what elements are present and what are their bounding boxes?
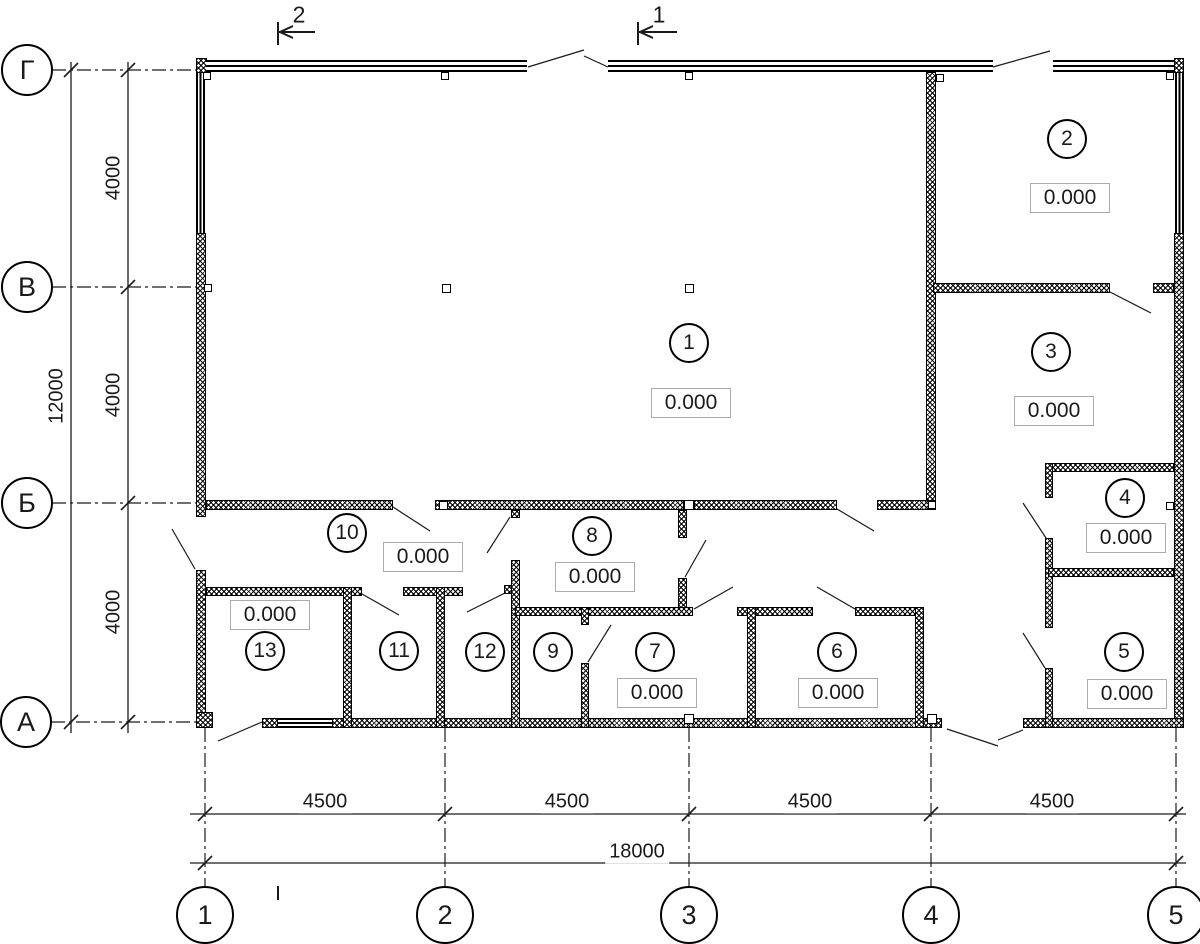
column-marker [439, 501, 448, 510]
wall-segment [436, 587, 445, 728]
room-11-number: 11 [379, 631, 419, 671]
axis-label: А [17, 707, 35, 738]
axis-row-g: Г [1, 44, 53, 96]
jamb-marker [204, 284, 212, 292]
wall-segment [678, 510, 687, 538]
jamb-marker [1166, 502, 1174, 510]
wall-segment [1174, 58, 1184, 73]
room-number-label: 5 [1118, 640, 1130, 664]
axis-label: В [18, 272, 36, 303]
dim-vertical-seg-2: 4000 [103, 369, 126, 422]
room-5-number: 5 [1104, 632, 1144, 672]
wall-segment [694, 500, 837, 510]
room-8-number: 8 [572, 516, 612, 556]
dim-value: 4000 [103, 373, 125, 418]
window-band [608, 60, 993, 72]
room-10-elevation: 0.000 [383, 542, 463, 572]
floor-plan: 1 2 3 4 5 6 7 8 9 10 11 12 13 0.000 0.00… [0, 0, 1200, 900]
wall-segment [511, 560, 520, 728]
room-number-label: 12 [473, 640, 496, 664]
wall-segment [196, 570, 206, 728]
axis-col-5: 5 [1147, 886, 1200, 944]
room-13-elevation: 0.000 [230, 600, 310, 630]
grid-row-lines [51, 70, 1176, 888]
window-band [1053, 60, 1174, 72]
section-2-label: 2 [293, 2, 306, 29]
room-2-number: 2 [1047, 119, 1087, 159]
axis-label: 2 [437, 900, 452, 931]
dim-value: 4000 [103, 590, 125, 635]
column-marker [684, 500, 694, 510]
axis-row-v: В [1, 261, 53, 313]
wall-segment [196, 712, 213, 728]
room-8-elevation: 0.000 [555, 562, 635, 592]
dim-value: 18000 [609, 841, 665, 863]
room-4-number: 4 [1105, 478, 1145, 518]
room-number-label: 6 [831, 640, 843, 664]
room-1-number: 1 [669, 323, 709, 363]
dim-vertical-seg-1: 4000 [103, 152, 126, 205]
section-label: 2 [293, 2, 306, 28]
room-3-elevation: 0.000 [1014, 396, 1094, 426]
room-9-number: 9 [533, 632, 573, 672]
wall-segment [403, 587, 463, 596]
wall-segment [196, 233, 206, 517]
dim-value: 12000 [46, 368, 68, 424]
axis-row-a: А [0, 696, 52, 748]
wall-segment [435, 500, 684, 510]
wall-segment [206, 587, 362, 596]
elevation-value: 0.000 [665, 391, 718, 415]
elevation-value: 0.000 [631, 681, 684, 705]
dim-value: 4500 [1030, 791, 1075, 813]
wall-segment [933, 283, 1110, 293]
elevation-value: 0.000 [244, 603, 297, 627]
room-12-number: 12 [465, 632, 505, 672]
wall-segment [581, 663, 589, 728]
elevation-value: 0.000 [397, 545, 450, 569]
window-band [278, 718, 332, 728]
wall-segment [1045, 463, 1053, 498]
window-band [1175, 73, 1184, 233]
room-6-elevation: 0.000 [798, 678, 878, 708]
column-marker [685, 72, 693, 80]
axis-col-3: 3 [660, 886, 718, 944]
axis-col-2: 2 [416, 886, 474, 944]
wall-segment [206, 500, 393, 510]
dim-horizontal-seg-2: 4500 [541, 791, 594, 814]
room-number-label: 13 [253, 639, 276, 663]
axis-label: 1 [197, 900, 212, 931]
window-band [196, 73, 205, 233]
wall-segment [1045, 538, 1053, 628]
dim-horizontal-seg-1: 4500 [299, 791, 352, 814]
wall-segment [262, 718, 278, 728]
wall-segment [1045, 463, 1174, 472]
dim-horizontal-seg-3: 4500 [784, 791, 837, 814]
room-7-elevation: 0.000 [617, 678, 697, 708]
room-5-elevation: 0.000 [1087, 679, 1167, 709]
section-marks [278, 22, 677, 900]
room-number-label: 11 [388, 639, 410, 663]
room-6-number: 6 [817, 632, 857, 672]
column-marker [441, 72, 449, 80]
axis-row-b: Б [1, 477, 53, 529]
wall-segment [915, 607, 924, 728]
column-marker [928, 501, 936, 509]
wall-segment [332, 718, 942, 728]
axis-label: 4 [923, 900, 938, 931]
room-2-elevation: 0.000 [1030, 183, 1110, 213]
room-number-label: 9 [547, 640, 559, 664]
wall-segment [1048, 568, 1174, 577]
drawing-lines [0, 0, 1200, 900]
room-number-label: 3 [1045, 340, 1057, 364]
room-4-elevation: 0.000 [1086, 523, 1166, 553]
dimension-ticks [64, 63, 1183, 870]
elevation-value: 0.000 [1100, 526, 1153, 550]
wall-segment [1174, 233, 1184, 728]
dim-value: 4500 [303, 791, 348, 813]
elevation-value: 0.000 [1101, 682, 1154, 706]
axis-label: 5 [1168, 900, 1183, 931]
axis-label: Б [18, 488, 36, 519]
jamb-marker [203, 72, 211, 80]
elevation-value: 0.000 [1044, 186, 1097, 210]
wall-segment [1045, 668, 1053, 728]
dimension-lines [71, 62, 1186, 863]
elevation-value: 0.000 [812, 681, 865, 705]
column-marker [442, 284, 451, 293]
jamb-marker [1166, 72, 1174, 80]
elevation-value: 0.000 [1028, 399, 1081, 423]
axis-col-4: 4 [902, 886, 960, 944]
jamb-marker [936, 74, 944, 82]
column-marker [927, 714, 937, 724]
axis-col-1: 1 [176, 886, 234, 944]
dim-value: 4500 [545, 791, 590, 813]
dim-vertical-total: 12000 [46, 364, 69, 428]
column-marker [685, 284, 694, 293]
axis-label: 3 [681, 900, 696, 931]
wall-segment [747, 607, 756, 728]
room-number-label: 4 [1119, 486, 1131, 510]
room-number-label: 8 [586, 524, 598, 548]
window-band [206, 60, 527, 72]
room-7-number: 7 [635, 632, 675, 672]
dim-vertical-seg-3: 4000 [103, 586, 126, 639]
dim-value: 4000 [103, 156, 125, 201]
room-13-number: 13 [245, 631, 285, 671]
room-number-label: 1 [683, 331, 695, 355]
room-1-elevation: 0.000 [651, 388, 731, 418]
room-3-number: 3 [1031, 332, 1071, 372]
wall-segment [343, 587, 352, 728]
column-marker [684, 714, 694, 724]
wall-segment [515, 607, 693, 616]
dim-value: 4500 [788, 791, 833, 813]
dim-horizontal-total: 18000 [605, 841, 669, 864]
section-label: 1 [653, 2, 666, 28]
room-number-label: 2 [1061, 127, 1073, 151]
elevation-value: 0.000 [569, 565, 622, 589]
dim-horizontal-seg-4: 4500 [1026, 791, 1079, 814]
wall-segment [855, 607, 919, 616]
wall-segment [1153, 283, 1174, 293]
section-1-label: 1 [653, 2, 666, 29]
room-10-number: 10 [327, 513, 367, 553]
wall-segment [511, 510, 520, 518]
room-number-label: 10 [335, 521, 358, 545]
room-number-label: 7 [649, 640, 661, 664]
axis-label: Г [20, 55, 35, 86]
wall-segment [581, 607, 589, 625]
